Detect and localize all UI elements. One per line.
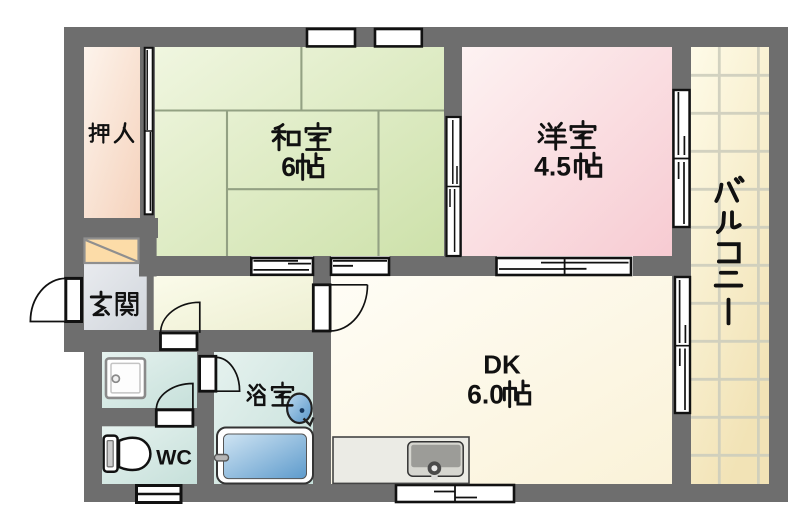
svg-text:6.0: 6.0 bbox=[467, 379, 504, 409]
svg-text:WC: WC bbox=[156, 446, 192, 470]
svg-text:DK: DK bbox=[483, 350, 521, 380]
svg-text:6: 6 bbox=[281, 152, 296, 182]
svg-text:4.5: 4.5 bbox=[534, 152, 571, 182]
